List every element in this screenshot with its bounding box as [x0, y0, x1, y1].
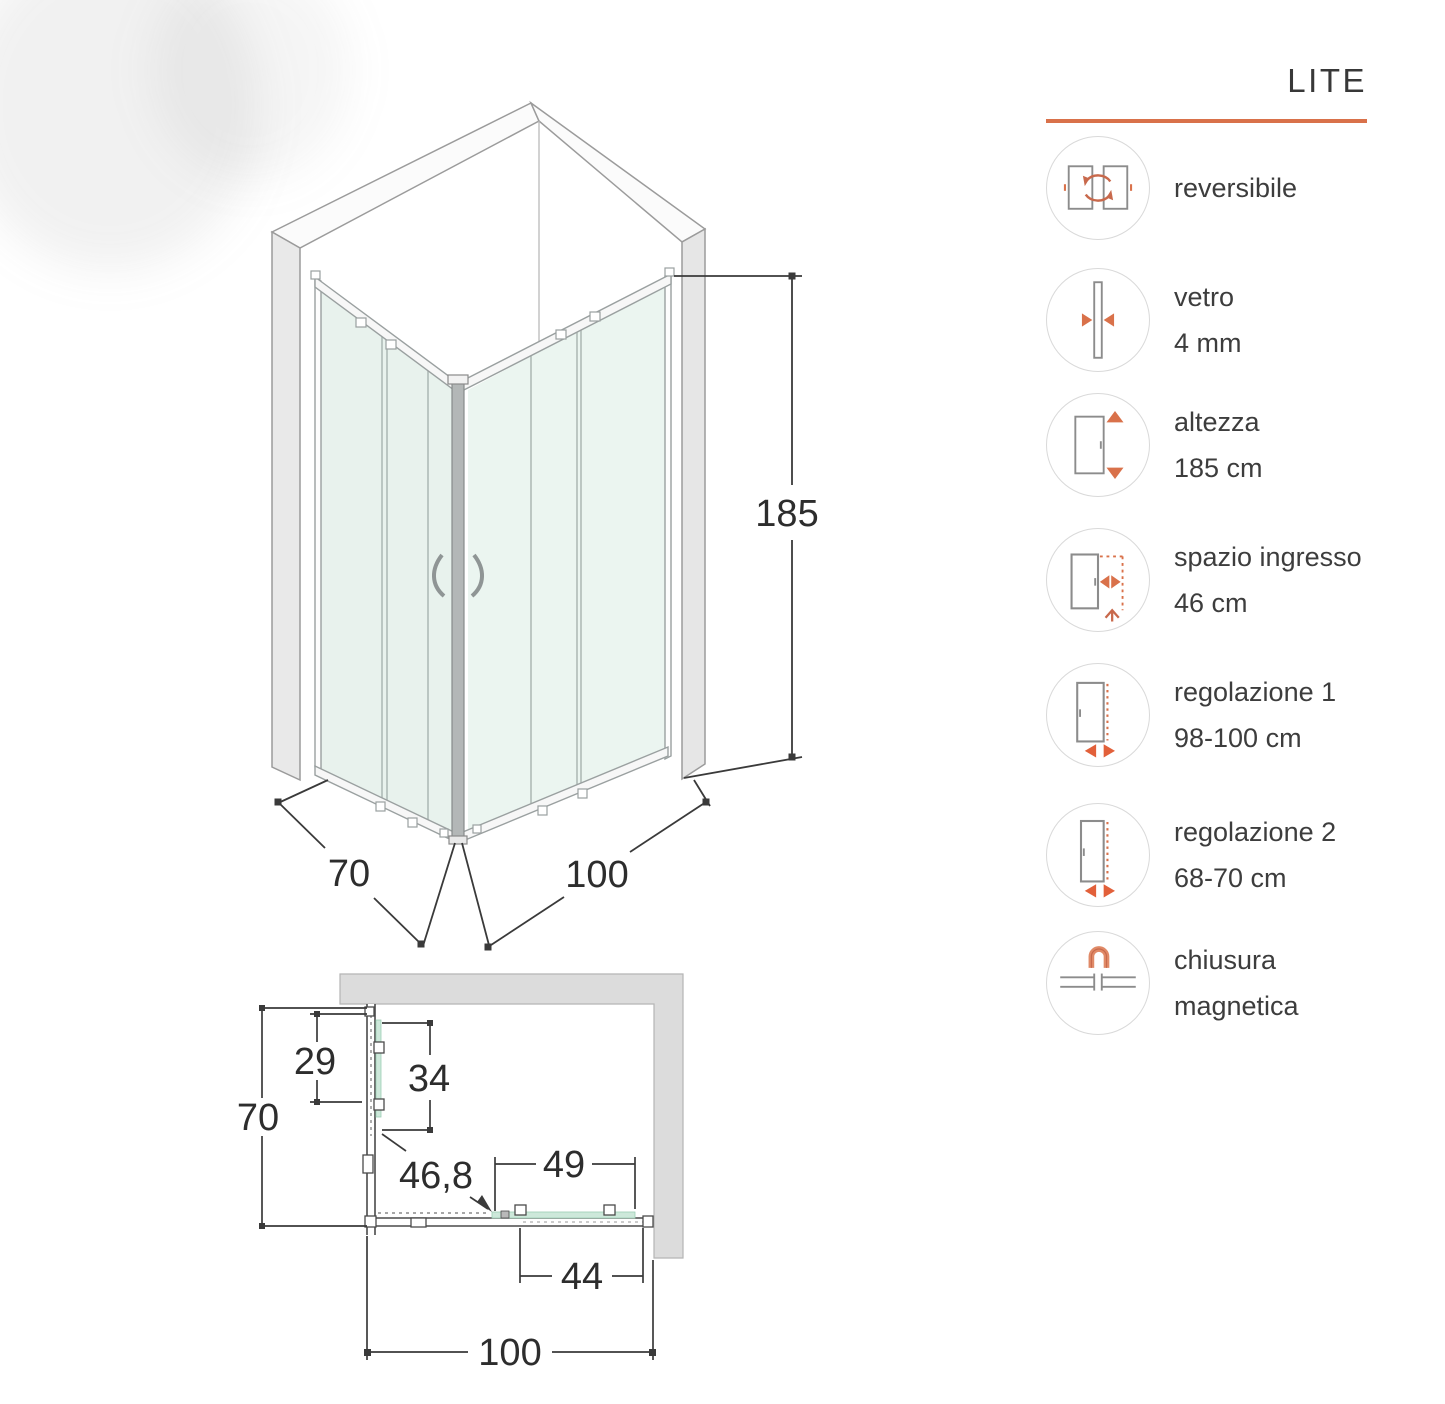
feature-row-altezza: altezza 185 cm [1046, 393, 1263, 497]
feature-line: regolazione 1 [1174, 669, 1336, 715]
plan-dim-upper-left-label: 29 [294, 1041, 336, 1083]
feature-line: magnetica [1174, 983, 1299, 1029]
entry-space-icon [1046, 528, 1150, 632]
feature-label: chiusura magnetica [1174, 937, 1299, 1029]
plan-drawing: 70 29 34 46,8 49 44 100 [230, 950, 990, 1400]
feature-line: 98-100 cm [1174, 715, 1336, 761]
magnetic-closure-icon [1046, 931, 1150, 1035]
adjustment-2-icon [1046, 803, 1150, 907]
feature-line: vetro [1174, 274, 1242, 320]
plan-dim-diagonal-label: 46,8 [399, 1155, 473, 1197]
feature-row-regolazione-2: regolazione 2 68-70 cm [1046, 803, 1336, 907]
iso-dim-depth-label: 70 [328, 853, 370, 895]
iso-dim-height-label: 185 [755, 493, 818, 535]
feature-row-reversibile: reversibile [1046, 136, 1297, 240]
feature-label: reversibile [1174, 165, 1297, 211]
feature-row-regolazione-1: regolazione 1 98-100 cm [1046, 663, 1336, 767]
iso-dim-width-label: 100 [565, 854, 628, 896]
feature-row-chiusura-magnetica: chiusura magnetica [1046, 931, 1299, 1035]
plan-dim-door-span-label: 49 [543, 1144, 585, 1186]
title-underline [1046, 119, 1367, 123]
feature-row-vetro: vetro 4 mm [1046, 268, 1242, 372]
feature-line: altezza [1174, 399, 1263, 445]
isometric-drawing: 185 70 100 [90, 80, 1030, 960]
feature-line: chiusura [1174, 937, 1299, 983]
page-title: LITE [1046, 62, 1367, 100]
glass-thickness-icon [1046, 268, 1150, 372]
feature-line: 46 cm [1174, 580, 1362, 626]
feature-label: regolazione 1 98-100 cm [1174, 669, 1336, 761]
feature-line: spazio ingresso [1174, 534, 1362, 580]
plan-dim-inner-left-label: 34 [408, 1058, 450, 1100]
feature-line: regolazione 2 [1174, 809, 1336, 855]
plan-bottom-glass [365, 1205, 653, 1227]
height-icon [1046, 393, 1150, 497]
plan-dim-width-label: 100 [478, 1332, 541, 1374]
feature-label: altezza 185 cm [1174, 399, 1263, 491]
plan-left-glass [363, 1004, 384, 1235]
plan-dim-lower-right-label: 44 [561, 1256, 603, 1298]
reversible-doors-icon [1046, 136, 1150, 240]
feature-row-spazio-ingresso: spazio ingresso 46 cm [1046, 528, 1362, 632]
plan-dim-depth-label: 70 [237, 1097, 279, 1139]
feature-line: reversibile [1174, 165, 1297, 211]
feature-label: spazio ingresso 46 cm [1174, 534, 1362, 626]
feature-label: vetro 4 mm [1174, 274, 1242, 366]
feature-line: 4 mm [1174, 320, 1242, 366]
feature-line: 185 cm [1174, 445, 1263, 491]
feature-label: regolazione 2 68-70 cm [1174, 809, 1336, 901]
spec-sheet: 185 70 100 [0, 0, 1445, 1404]
adjustment-1-icon [1046, 663, 1150, 767]
feature-line: 68-70 cm [1174, 855, 1336, 901]
